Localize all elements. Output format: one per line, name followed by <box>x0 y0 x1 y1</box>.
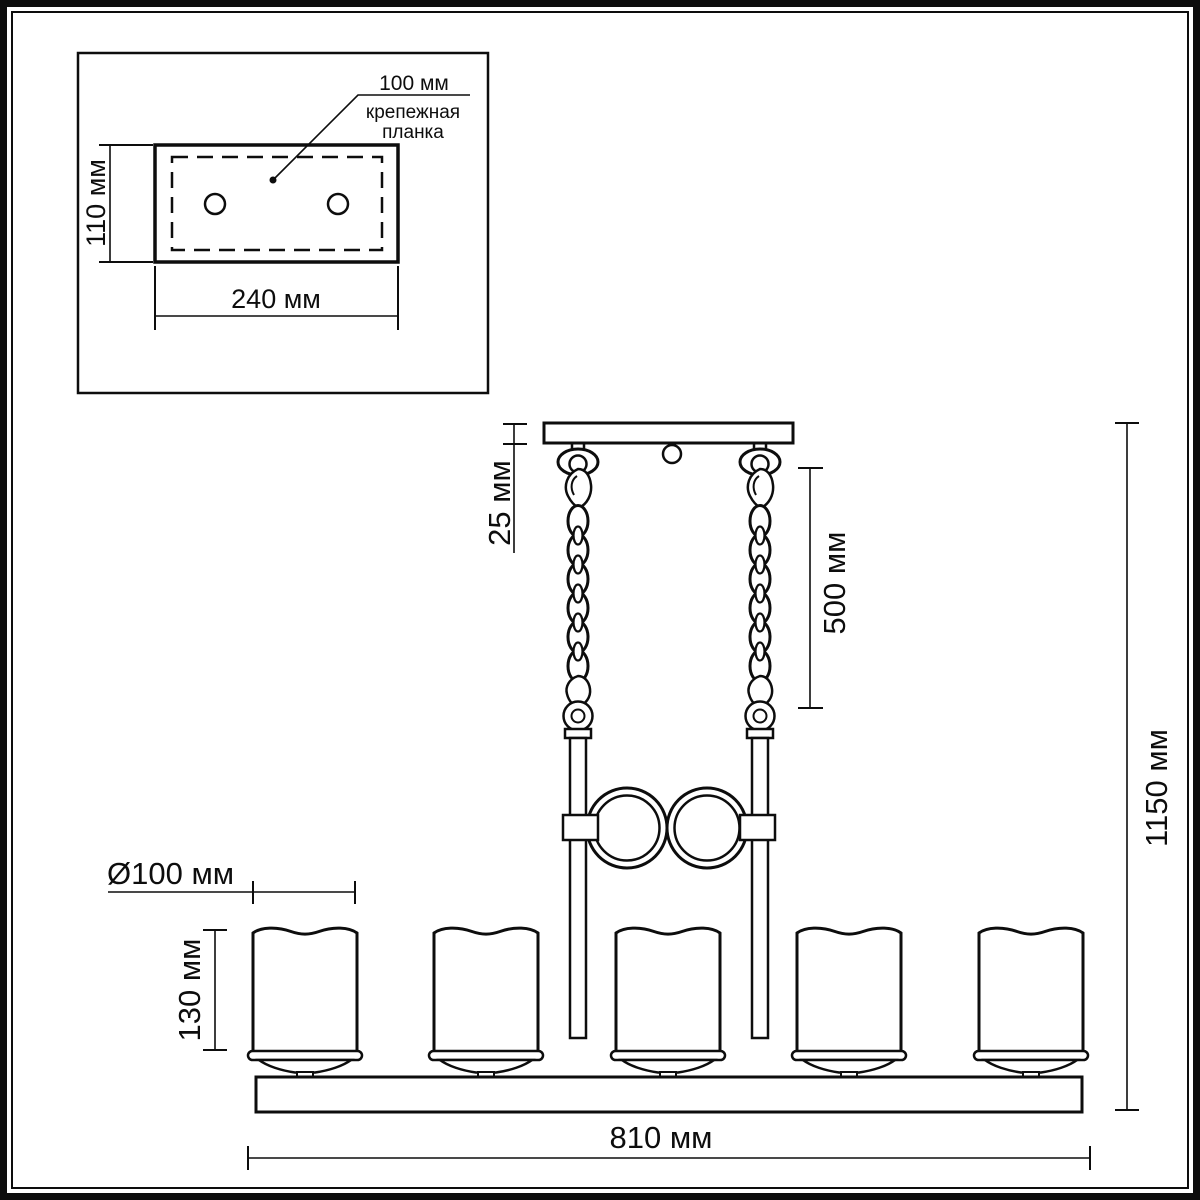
chain-left <box>558 443 598 1038</box>
dim-label-500mm: 500 мм <box>817 532 852 635</box>
decor-ring-left-inner <box>595 796 660 861</box>
shade-1 <box>248 928 362 1079</box>
dim-label-110mm: 110 мм <box>81 159 111 247</box>
bottom-bar <box>256 1077 1082 1112</box>
chain-right <box>740 443 780 1038</box>
dim-label-130mm: 130 мм <box>172 939 207 1042</box>
technical-drawing-page: 100 мм крепежная планка 110 мм 240 мм <box>0 0 1200 1200</box>
mount-plate-label-line1: крепежная <box>366 102 460 123</box>
dim-label-1150mm: 1150 мм <box>1139 729 1174 847</box>
ring-bracket-left <box>563 815 598 840</box>
decor-ring-right-outer <box>667 788 747 868</box>
decor-ring-right-inner <box>675 796 740 861</box>
chandelier-drawing <box>248 423 1088 1112</box>
shade-2 <box>429 928 543 1079</box>
ceiling-bar <box>544 423 793 443</box>
shade-5 <box>974 928 1088 1079</box>
ring-bracket-right <box>740 815 775 840</box>
mounting-plate-inset: 100 мм крепежная планка 110 мм 240 мм <box>78 53 488 393</box>
dim-canopy-25mm: 25 мм <box>482 423 527 553</box>
dim-shade-height-130mm: 130 мм <box>172 930 227 1050</box>
leader-value-label: 100 мм <box>379 72 449 95</box>
shade-4 <box>792 928 906 1079</box>
dim-chain-500mm: 500 мм <box>798 468 852 708</box>
dim-label-240mm: 240 мм <box>231 284 321 314</box>
dim-total-height-1150mm: 1150 мм <box>1115 423 1174 1110</box>
mount-plate-label-line2: планка <box>382 122 444 143</box>
dim-label-810mm: 810 мм <box>610 1120 713 1155</box>
dim-ticks <box>503 424 527 444</box>
chandelier-dimension-drawing: 100 мм крепежная планка 110 мм 240 мм <box>0 0 1200 1200</box>
dim-bar-length-810mm: 810 мм <box>248 1120 1090 1170</box>
dim-shade-diameter-100mm: Ø100 мм <box>107 856 355 904</box>
shade-3 <box>611 928 725 1079</box>
dim-label-25mm: 25 мм <box>482 460 517 546</box>
canopy-ball <box>663 445 681 463</box>
dim-label-d100mm: Ø100 мм <box>107 856 234 891</box>
